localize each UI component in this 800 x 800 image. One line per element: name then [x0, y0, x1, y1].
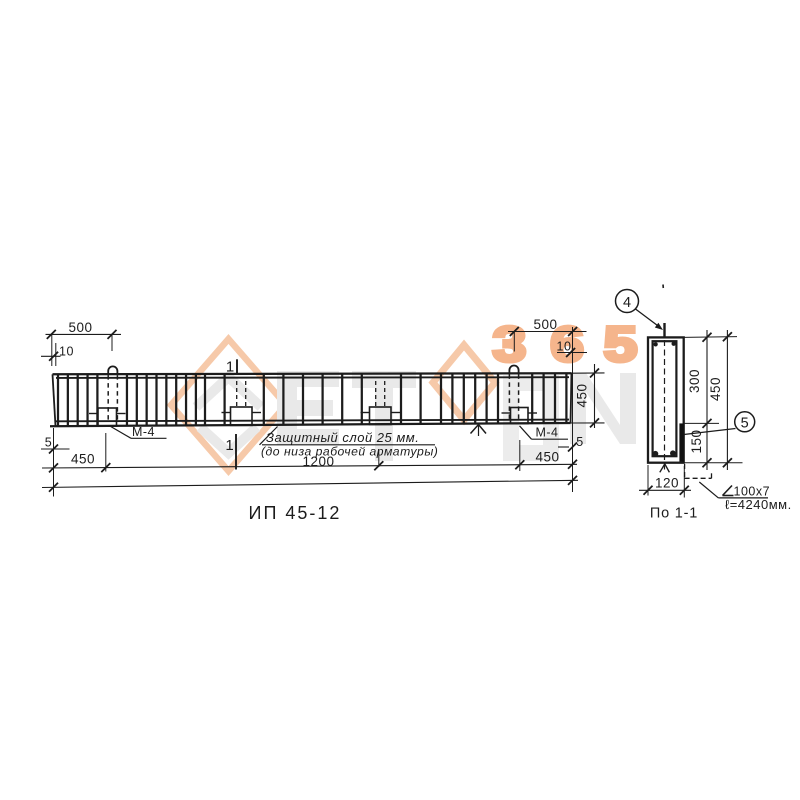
svg-text:500: 500 [533, 317, 557, 332]
svg-text:450: 450 [71, 452, 95, 467]
svg-text:ИП 45-12: ИП 45-12 [249, 503, 342, 523]
svg-text:150: 150 [689, 429, 704, 453]
svg-text:5: 5 [604, 316, 638, 372]
svg-text:4: 4 [623, 295, 631, 311]
svg-text:10: 10 [59, 345, 74, 359]
svg-text:5: 5 [576, 435, 583, 449]
svg-text:5: 5 [741, 415, 749, 431]
svg-text:По 1-1: По 1-1 [650, 506, 698, 522]
svg-text:450: 450 [708, 377, 723, 401]
svg-text:120: 120 [655, 476, 679, 491]
svg-text:1: 1 [226, 359, 234, 376]
svg-text:Защитный слой 25 мм.: Защитный слой 25 мм. [266, 430, 419, 445]
svg-text:10: 10 [557, 340, 572, 354]
svg-text:М-4: М-4 [535, 426, 558, 440]
svg-text:(до низа рабочей арматуры): (до низа рабочей арматуры) [261, 445, 438, 459]
svg-text:450: 450 [575, 383, 590, 407]
svg-text:3: 3 [493, 316, 527, 372]
svg-text:500: 500 [68, 320, 92, 335]
svg-text:450: 450 [535, 450, 559, 465]
svg-text:300: 300 [687, 369, 702, 393]
svg-text:М-4: М-4 [132, 425, 155, 439]
svg-text:ℓ=4240мм.: ℓ=4240мм. [725, 497, 792, 512]
svg-text:1: 1 [225, 437, 233, 454]
svg-text:5: 5 [45, 436, 52, 450]
